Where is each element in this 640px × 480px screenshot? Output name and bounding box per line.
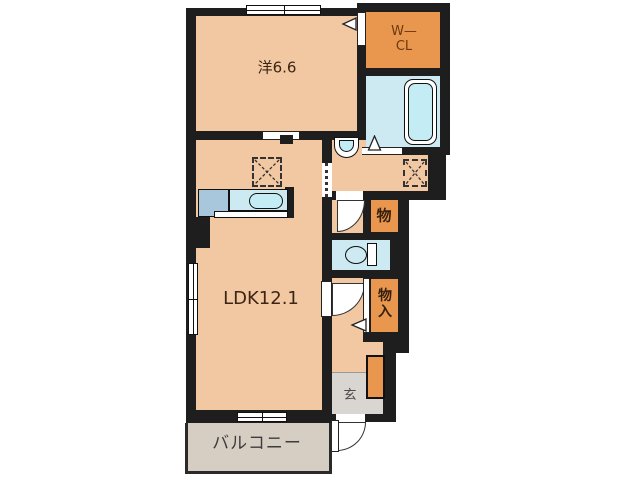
balcony-label: バルコニー [212, 433, 302, 454]
bedroom-label: 洋6.6 [258, 59, 297, 78]
entrance-label: 玄 [343, 388, 356, 404]
shoe-cabinet [366, 355, 385, 399]
bedroom-window [246, 5, 321, 15]
washroom-door-opening [336, 191, 363, 200]
entrance-door-opening [336, 414, 365, 422]
entrance-door-leaf [331, 420, 339, 452]
toilet-tank [367, 243, 377, 266]
ldk-door-leaf [321, 281, 332, 317]
ldk-side-window [188, 263, 198, 335]
wall-wcl-bottom [357, 68, 449, 76]
wall-left [186, 8, 196, 423]
wcl-label-line1: W— [391, 25, 417, 40]
kitchen-washroom-opening-dots [325, 163, 328, 197]
wcl-door-arrow-icon [341, 16, 357, 32]
closet-label-line1: 物 [378, 288, 392, 304]
kitchen-sink [249, 193, 283, 209]
bathroom-door-arrow-icon [367, 135, 382, 151]
balcony-sliding-window [237, 412, 287, 422]
closet-door-arrow-icon [350, 317, 368, 333]
wcl-label: W— CL [391, 25, 417, 55]
wall-wcl-top [357, 3, 450, 12]
kitchen-stub-left [196, 217, 210, 248]
washing-machine-space [403, 159, 427, 187]
bathtub [404, 79, 437, 145]
closet-label: 物 入 [378, 288, 392, 320]
storage-label: 物 [376, 207, 391, 226]
entrance-door-swing [337, 422, 366, 451]
floor-plan: 洋6.6 W— CL LDK12.1 物 物 入 玄 バルコニー [0, 0, 640, 480]
wall-toilet-bottom [322, 270, 408, 278]
toilet-bowl [345, 246, 367, 264]
wcl-door-leaf [357, 12, 366, 46]
wcl-label-line2: CL [396, 40, 412, 55]
closet-label-line2: 入 [378, 304, 392, 320]
ldk-label: LDK12.1 [223, 288, 299, 311]
kitchen-counter-edge [214, 211, 288, 218]
refrigerator-space [252, 157, 282, 187]
bedroom-ldk-sliding-door-nub [280, 135, 293, 144]
wall-right-upper [440, 3, 450, 155]
